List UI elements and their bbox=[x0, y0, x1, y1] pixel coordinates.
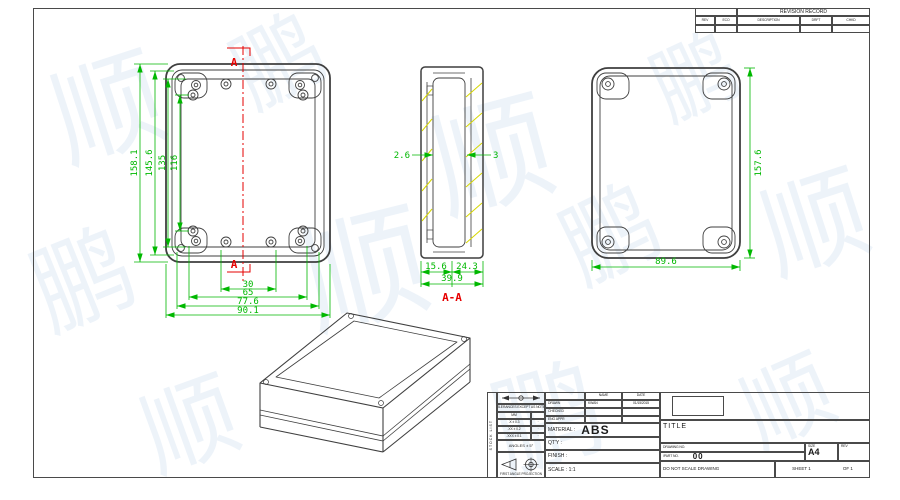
side-view bbox=[592, 68, 740, 258]
part-no-row: /PART NO. 00 bbox=[660, 452, 805, 461]
logo-box bbox=[672, 396, 724, 416]
section-hatching bbox=[422, 83, 482, 243]
revision-empty-cell bbox=[737, 25, 800, 33]
side-view-dimensions bbox=[592, 68, 755, 271]
eng-appr-label: ENG APPR bbox=[545, 416, 585, 423]
drawn-date: 01/15/2015 bbox=[622, 400, 660, 408]
dimension-arrows-icon bbox=[499, 393, 543, 403]
part-no-value: 00 bbox=[693, 453, 704, 461]
front-view bbox=[166, 64, 330, 262]
name-header: NAME bbox=[585, 392, 622, 400]
date-header: DATE bbox=[622, 392, 660, 400]
scale-row: SCALE : 1:1 bbox=[545, 463, 660, 478]
tolerance-row: .XXX ± 0.1 bbox=[497, 433, 531, 440]
revision-col-description: DESCRIPTION bbox=[737, 16, 800, 25]
tolerance-row: .X ± 0.3 bbox=[497, 419, 531, 426]
finish-row: FINISH : bbox=[545, 450, 660, 463]
part-no-label: /PART NO. bbox=[663, 455, 679, 458]
dim-label: 90.1 bbox=[237, 306, 259, 316]
section-view bbox=[421, 67, 483, 258]
front-view-dimensions bbox=[134, 64, 330, 318]
material-row: MATERIAL : ABS bbox=[545, 423, 660, 437]
first-angle-projection-icon bbox=[499, 457, 543, 472]
revision-empty-cell bbox=[715, 25, 737, 33]
material-label: MATERIAL : bbox=[548, 428, 575, 433]
size-cell: SIZE A4 bbox=[805, 443, 838, 461]
stock-list-label: STOCK LIST bbox=[490, 420, 494, 450]
dimension-symbol-cell bbox=[497, 392, 545, 404]
qty-row: QT'Y : bbox=[545, 437, 660, 450]
drawing-no-label: DRAWING NO. bbox=[660, 443, 805, 452]
dim-label: 135 bbox=[158, 155, 168, 171]
drawn-label: DRAWN bbox=[545, 400, 585, 408]
section-view-label: A-A bbox=[442, 291, 462, 304]
revision-title: REVISION RECORD bbox=[737, 8, 870, 16]
drawing-canvas: 顺 鹏 顺 鹏 鹏 顺 鹏 顺 顺 鹏 顺 bbox=[0, 0, 900, 500]
revision-col-eco: ECO bbox=[715, 16, 737, 25]
eng-appr-name bbox=[585, 416, 622, 423]
projection-label: FIRST ANGLE PROJECTION bbox=[500, 473, 542, 476]
dim-label: 3 bbox=[493, 151, 498, 161]
rev-label: REV bbox=[841, 445, 848, 448]
revision-empty-cell bbox=[695, 25, 715, 33]
rev-cell: REV bbox=[838, 443, 870, 461]
tolerance-dot-cell: · bbox=[531, 419, 545, 426]
size-value: A4 bbox=[808, 448, 820, 457]
tolerance-dot-cell: · bbox=[531, 426, 545, 433]
revision-blank-cell bbox=[695, 8, 737, 16]
dim-label: 145.6 bbox=[145, 149, 155, 176]
revision-col-rev: REV bbox=[695, 16, 715, 25]
eng-appr-date bbox=[622, 416, 660, 423]
title-label: TITLE bbox=[660, 420, 870, 443]
drawn-name: KWAN bbox=[585, 400, 622, 408]
tolerance-row: .XX ± 0.2 bbox=[497, 426, 531, 433]
tolerance-dot-cell bbox=[531, 412, 545, 419]
tolerance-unit: MM bbox=[497, 412, 531, 419]
dim-label: 2.6 bbox=[394, 151, 410, 161]
section-marker-top: A bbox=[231, 56, 238, 69]
stock-list-strip: STOCK LIST bbox=[487, 392, 497, 478]
angles-tolerance: ANGLES ± 5° bbox=[497, 440, 545, 452]
tolerance-dot-cell: · bbox=[531, 433, 545, 440]
do-not-scale-cell: DO NOT SCALE DRAWING bbox=[660, 461, 775, 478]
dim-label: 157.6 bbox=[754, 149, 764, 176]
revision-col-chkd: CHKD bbox=[832, 16, 870, 25]
of-label: OF 1 bbox=[843, 467, 853, 472]
dim-label: 15.6 bbox=[425, 262, 447, 272]
sheet-label: SHEET 1 bbox=[792, 467, 811, 472]
dim-label: 24.3 bbox=[456, 262, 478, 272]
revision-empty-cell bbox=[832, 25, 870, 33]
tolerances-header: TOLERANCES EXCEPT AS NOTED bbox=[497, 404, 545, 412]
isometric-view bbox=[260, 313, 470, 452]
section-marker-bottom: A bbox=[231, 258, 238, 271]
info-blank-header bbox=[545, 392, 585, 400]
dim-label: 158.1 bbox=[130, 149, 140, 176]
revision-col-drft: DRFT bbox=[800, 16, 832, 25]
dim-label: 89.6 bbox=[655, 257, 677, 267]
revision-empty-cell bbox=[800, 25, 832, 33]
section-dimensions bbox=[412, 155, 491, 287]
checked-date bbox=[622, 408, 660, 416]
projection-cell: FIRST ANGLE PROJECTION bbox=[497, 452, 545, 478]
checked-label: CHECKED bbox=[545, 408, 585, 416]
sheet-cell: SHEET 1 OF 1 bbox=[775, 461, 870, 478]
checked-name bbox=[585, 408, 622, 416]
dim-label: 39.9 bbox=[441, 274, 463, 284]
dim-label: 116 bbox=[170, 155, 180, 171]
material-value: ABS bbox=[581, 424, 609, 436]
